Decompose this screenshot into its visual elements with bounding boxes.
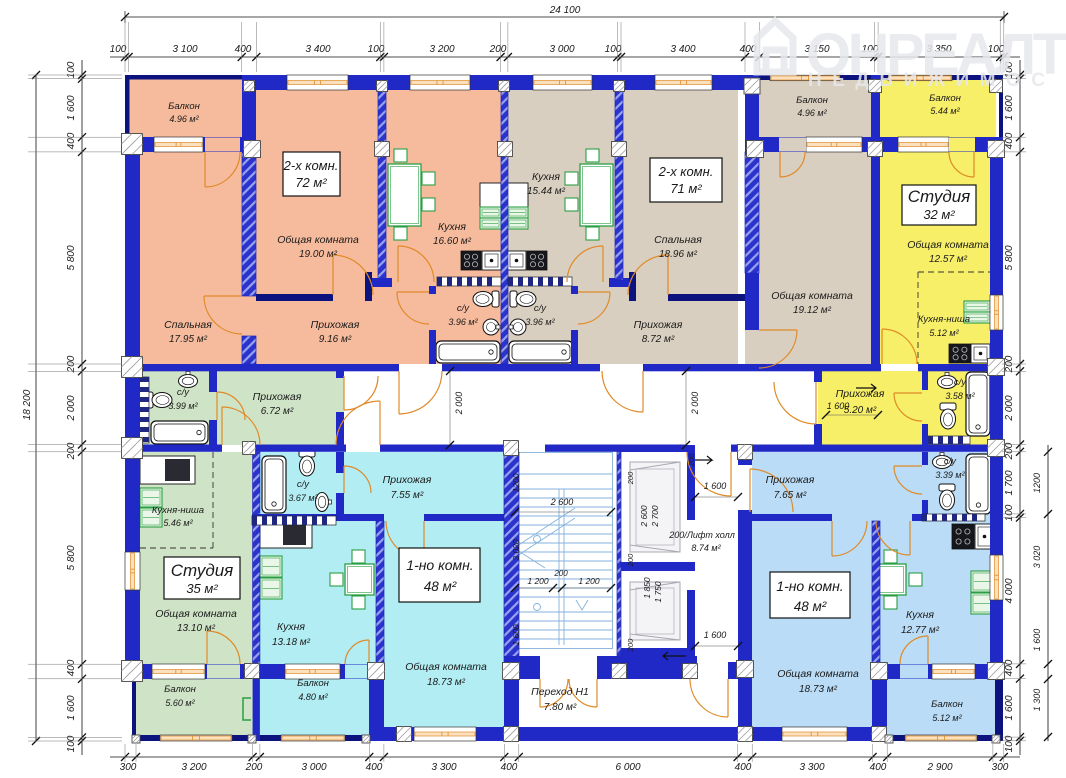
- svg-text:300: 300: [992, 762, 1009, 773]
- svg-text:НЕДВИЖИМОС: НЕДВИЖИМОС: [808, 70, 1055, 91]
- svg-text:100: 100: [605, 44, 622, 55]
- svg-text:Балкон: Балкон: [929, 93, 961, 104]
- svg-text:с/у: с/у: [954, 377, 967, 388]
- svg-text:3.58 м²: 3.58 м²: [945, 391, 975, 401]
- svg-text:Кухня-ниша: Кухня-ниша: [918, 314, 970, 325]
- svg-text:5.12 м²: 5.12 м²: [929, 328, 959, 338]
- svg-text:1 850: 1 850: [642, 577, 652, 599]
- svg-text:400: 400: [66, 659, 77, 676]
- svg-text:Кухня: Кухня: [438, 221, 466, 233]
- svg-text:18 200: 18 200: [22, 389, 33, 420]
- svg-text:1 200: 1 200: [527, 576, 549, 586]
- svg-text:400: 400: [1004, 659, 1015, 676]
- svg-text:Балкон: Балкон: [931, 699, 963, 710]
- svg-text:Переход Н1: Переход Н1: [531, 686, 589, 698]
- svg-text:400: 400: [501, 762, 518, 773]
- svg-text:2-х комн.: 2-х комн.: [283, 158, 339, 173]
- svg-text:24 100: 24 100: [549, 5, 581, 16]
- svg-text:13.10 м²: 13.10 м²: [177, 623, 216, 634]
- svg-text:17.95 м²: 17.95 м²: [169, 334, 208, 345]
- svg-text:Студия: Студия: [171, 561, 234, 580]
- svg-text:48 м²: 48 м²: [794, 599, 827, 614]
- svg-text:200: 200: [245, 762, 263, 773]
- svg-text:4 000: 4 000: [1004, 578, 1015, 603]
- svg-text:71 м²: 71 м²: [670, 181, 702, 196]
- svg-text:13.18 м²: 13.18 м²: [272, 637, 311, 648]
- svg-text:1 200: 1 200: [578, 576, 600, 586]
- svg-text:1 300: 1 300: [1032, 689, 1042, 712]
- svg-text:Балкон: Балкон: [164, 684, 196, 695]
- svg-text:18.96 м²: 18.96 м²: [659, 249, 698, 260]
- svg-text:1-но комн.: 1-но комн.: [406, 557, 473, 573]
- svg-text:3 400: 3 400: [670, 44, 695, 55]
- svg-text:Прихожая: Прихожая: [766, 474, 815, 486]
- svg-text:3 100: 3 100: [172, 44, 197, 55]
- svg-text:Балкон: Балкон: [297, 678, 329, 689]
- svg-text:Общая комната: Общая комната: [777, 668, 859, 680]
- svg-text:48 м²: 48 м²: [424, 579, 457, 594]
- svg-text:2 700: 2 700: [650, 505, 660, 528]
- svg-text:8.74 м²: 8.74 м²: [691, 543, 721, 553]
- svg-text:200: 200: [66, 355, 77, 373]
- svg-text:100: 100: [1004, 504, 1015, 521]
- svg-text:с/у: с/у: [297, 479, 310, 490]
- svg-text:1 600: 1 600: [1004, 695, 1015, 720]
- svg-text:3 000: 3 000: [301, 762, 326, 773]
- svg-text:3.39 м²: 3.39 м²: [935, 470, 965, 480]
- svg-text:400: 400: [66, 132, 77, 149]
- svg-text:200: 200: [626, 638, 635, 652]
- svg-text:2 000: 2 000: [690, 392, 700, 416]
- svg-text:100: 100: [1004, 735, 1015, 752]
- svg-text:3.67 м²: 3.67 м²: [288, 493, 318, 503]
- svg-text:7.55 м²: 7.55 м²: [391, 490, 424, 501]
- svg-text:2 900: 2 900: [926, 762, 952, 773]
- svg-text:Общая комната: Общая комната: [405, 661, 487, 673]
- svg-text:Прихожая: Прихожая: [836, 388, 885, 400]
- svg-text:200: 200: [66, 442, 77, 460]
- svg-text:3.96 м²: 3.96 м²: [448, 317, 478, 327]
- svg-text:35 м²: 35 м²: [186, 581, 218, 596]
- svg-text:Кухня: Кухня: [532, 171, 560, 183]
- svg-text:300: 300: [120, 762, 137, 773]
- svg-text:1 600: 1 600: [66, 695, 77, 720]
- svg-text:Общая комната: Общая комната: [155, 608, 237, 620]
- svg-text:12.77 м²: 12.77 м²: [901, 625, 940, 636]
- svg-text:7.65 м²: 7.65 м²: [774, 490, 807, 501]
- svg-text:Спальная: Спальная: [164, 319, 212, 331]
- svg-text:100: 100: [368, 44, 385, 55]
- svg-text:4.96 м²: 4.96 м²: [169, 114, 199, 124]
- svg-text:400: 400: [366, 762, 383, 773]
- svg-text:Кухня-ниша: Кухня-ниша: [152, 505, 204, 516]
- svg-text:Общая комната: Общая комната: [277, 234, 359, 246]
- svg-text:100: 100: [66, 61, 77, 78]
- svg-text:Студия: Студия: [908, 187, 971, 206]
- svg-text:с/у: с/у: [177, 387, 190, 398]
- svg-text:2 600: 2 600: [550, 497, 574, 507]
- svg-text:Кухня: Кухня: [906, 609, 934, 621]
- svg-text:18.73 м²: 18.73 м²: [799, 684, 838, 695]
- svg-text:1 600: 1 600: [66, 95, 77, 120]
- svg-text:200/Лифт холл: 200/Лифт холл: [668, 530, 735, 540]
- svg-text:5 800: 5 800: [66, 245, 77, 270]
- svg-text:400: 400: [735, 762, 752, 773]
- svg-text:2 000: 2 000: [66, 395, 77, 421]
- svg-text:1200: 1200: [1032, 473, 1042, 493]
- svg-text:Прихожая: Прихожая: [253, 391, 302, 403]
- svg-text:3.96 м²: 3.96 м²: [525, 317, 555, 327]
- svg-text:5 800: 5 800: [66, 545, 77, 570]
- svg-text:1 600: 1 600: [704, 481, 727, 491]
- svg-text:15.44 м²: 15.44 м²: [527, 186, 566, 197]
- svg-text:3 020: 3 020: [511, 539, 521, 561]
- svg-text:18.73 м²: 18.73 м²: [427, 677, 466, 688]
- svg-text:4.80 м²: 4.80 м²: [298, 692, 328, 702]
- svg-text:1 600: 1 600: [511, 624, 521, 646]
- svg-text:3 300: 3 300: [431, 762, 456, 773]
- svg-text:5.12 м²: 5.12 м²: [932, 713, 962, 723]
- svg-text:Прихожая: Прихожая: [311, 319, 360, 331]
- svg-text:100: 100: [66, 735, 77, 752]
- svg-text:Балкон: Балкон: [796, 95, 828, 106]
- svg-text:400: 400: [1004, 132, 1015, 149]
- svg-text:1 600: 1 600: [1004, 95, 1015, 120]
- svg-text:7.80 м²: 7.80 м²: [544, 702, 577, 713]
- svg-text:3 200: 3 200: [181, 762, 206, 773]
- svg-text:3 400: 3 400: [305, 44, 330, 55]
- svg-text:1 700: 1 700: [1004, 470, 1015, 495]
- svg-text:3 200: 3 200: [429, 44, 454, 55]
- svg-text:72 м²: 72 м²: [295, 175, 327, 190]
- svg-text:1 600: 1 600: [704, 630, 727, 640]
- svg-text:Общая комната: Общая комната: [907, 239, 989, 251]
- svg-text:2 000: 2 000: [454, 392, 464, 416]
- svg-text:Кухня: Кухня: [277, 621, 305, 633]
- svg-text:1200: 1200: [511, 473, 521, 492]
- svg-text:Общая комната: Общая комната: [771, 290, 853, 302]
- svg-text:4.96 м²: 4.96 м²: [797, 108, 827, 118]
- svg-text:Прихожая: Прихожая: [634, 319, 683, 331]
- svg-text:19.00 м²: 19.00 м²: [299, 249, 338, 260]
- svg-text:5 800: 5 800: [1004, 245, 1015, 270]
- svg-text:200: 200: [626, 471, 635, 485]
- svg-text:19.12 м²: 19.12 м²: [793, 305, 832, 316]
- svg-text:3 000: 3 000: [549, 44, 574, 55]
- svg-text:5.60 м²: 5.60 м²: [165, 698, 195, 708]
- svg-text:2 000: 2 000: [1004, 395, 1015, 421]
- svg-text:6.72 м²: 6.72 м²: [261, 406, 294, 417]
- svg-text:с/у: с/у: [534, 303, 547, 314]
- svg-text:5.20 м²: 5.20 м²: [844, 405, 877, 416]
- svg-text:200: 200: [626, 553, 635, 567]
- svg-text:32 м²: 32 м²: [923, 207, 955, 222]
- svg-text:9.16 м²: 9.16 м²: [319, 334, 352, 345]
- svg-text:2-х комн.: 2-х комн.: [658, 164, 714, 179]
- svg-text:2 600: 2 600: [639, 505, 649, 528]
- svg-text:с/у: с/у: [944, 456, 957, 467]
- svg-text:Балкон: Балкон: [168, 101, 200, 112]
- svg-text:400: 400: [870, 762, 887, 773]
- svg-text:200: 200: [489, 44, 507, 55]
- svg-text:Спальная: Спальная: [654, 234, 702, 246]
- svg-text:16.60 м²: 16.60 м²: [433, 236, 472, 247]
- svg-text:200: 200: [1004, 355, 1015, 373]
- svg-text:1 600: 1 600: [1032, 629, 1042, 652]
- svg-text:200: 200: [687, 453, 696, 467]
- svg-text:6 000: 6 000: [615, 762, 640, 773]
- svg-text:3 020: 3 020: [1032, 546, 1042, 569]
- svg-text:400: 400: [235, 44, 252, 55]
- svg-text:200: 200: [553, 569, 568, 578]
- svg-text:5.44 м²: 5.44 м²: [930, 106, 960, 116]
- svg-text:Прихожая: Прихожая: [383, 474, 432, 486]
- svg-text:200: 200: [1004, 442, 1015, 460]
- svg-text:с/у: с/у: [457, 303, 470, 314]
- svg-text:1-но комн.: 1-но комн.: [776, 578, 843, 594]
- svg-text:8.72 м²: 8.72 м²: [642, 334, 675, 345]
- svg-text:3.99 м²: 3.99 м²: [168, 401, 198, 411]
- svg-text:12.57 м²: 12.57 м²: [929, 254, 968, 265]
- svg-text:5.46 м²: 5.46 м²: [163, 518, 193, 528]
- svg-text:100: 100: [110, 44, 127, 55]
- svg-text:1 750: 1 750: [653, 581, 663, 603]
- svg-text:3 300: 3 300: [799, 762, 824, 773]
